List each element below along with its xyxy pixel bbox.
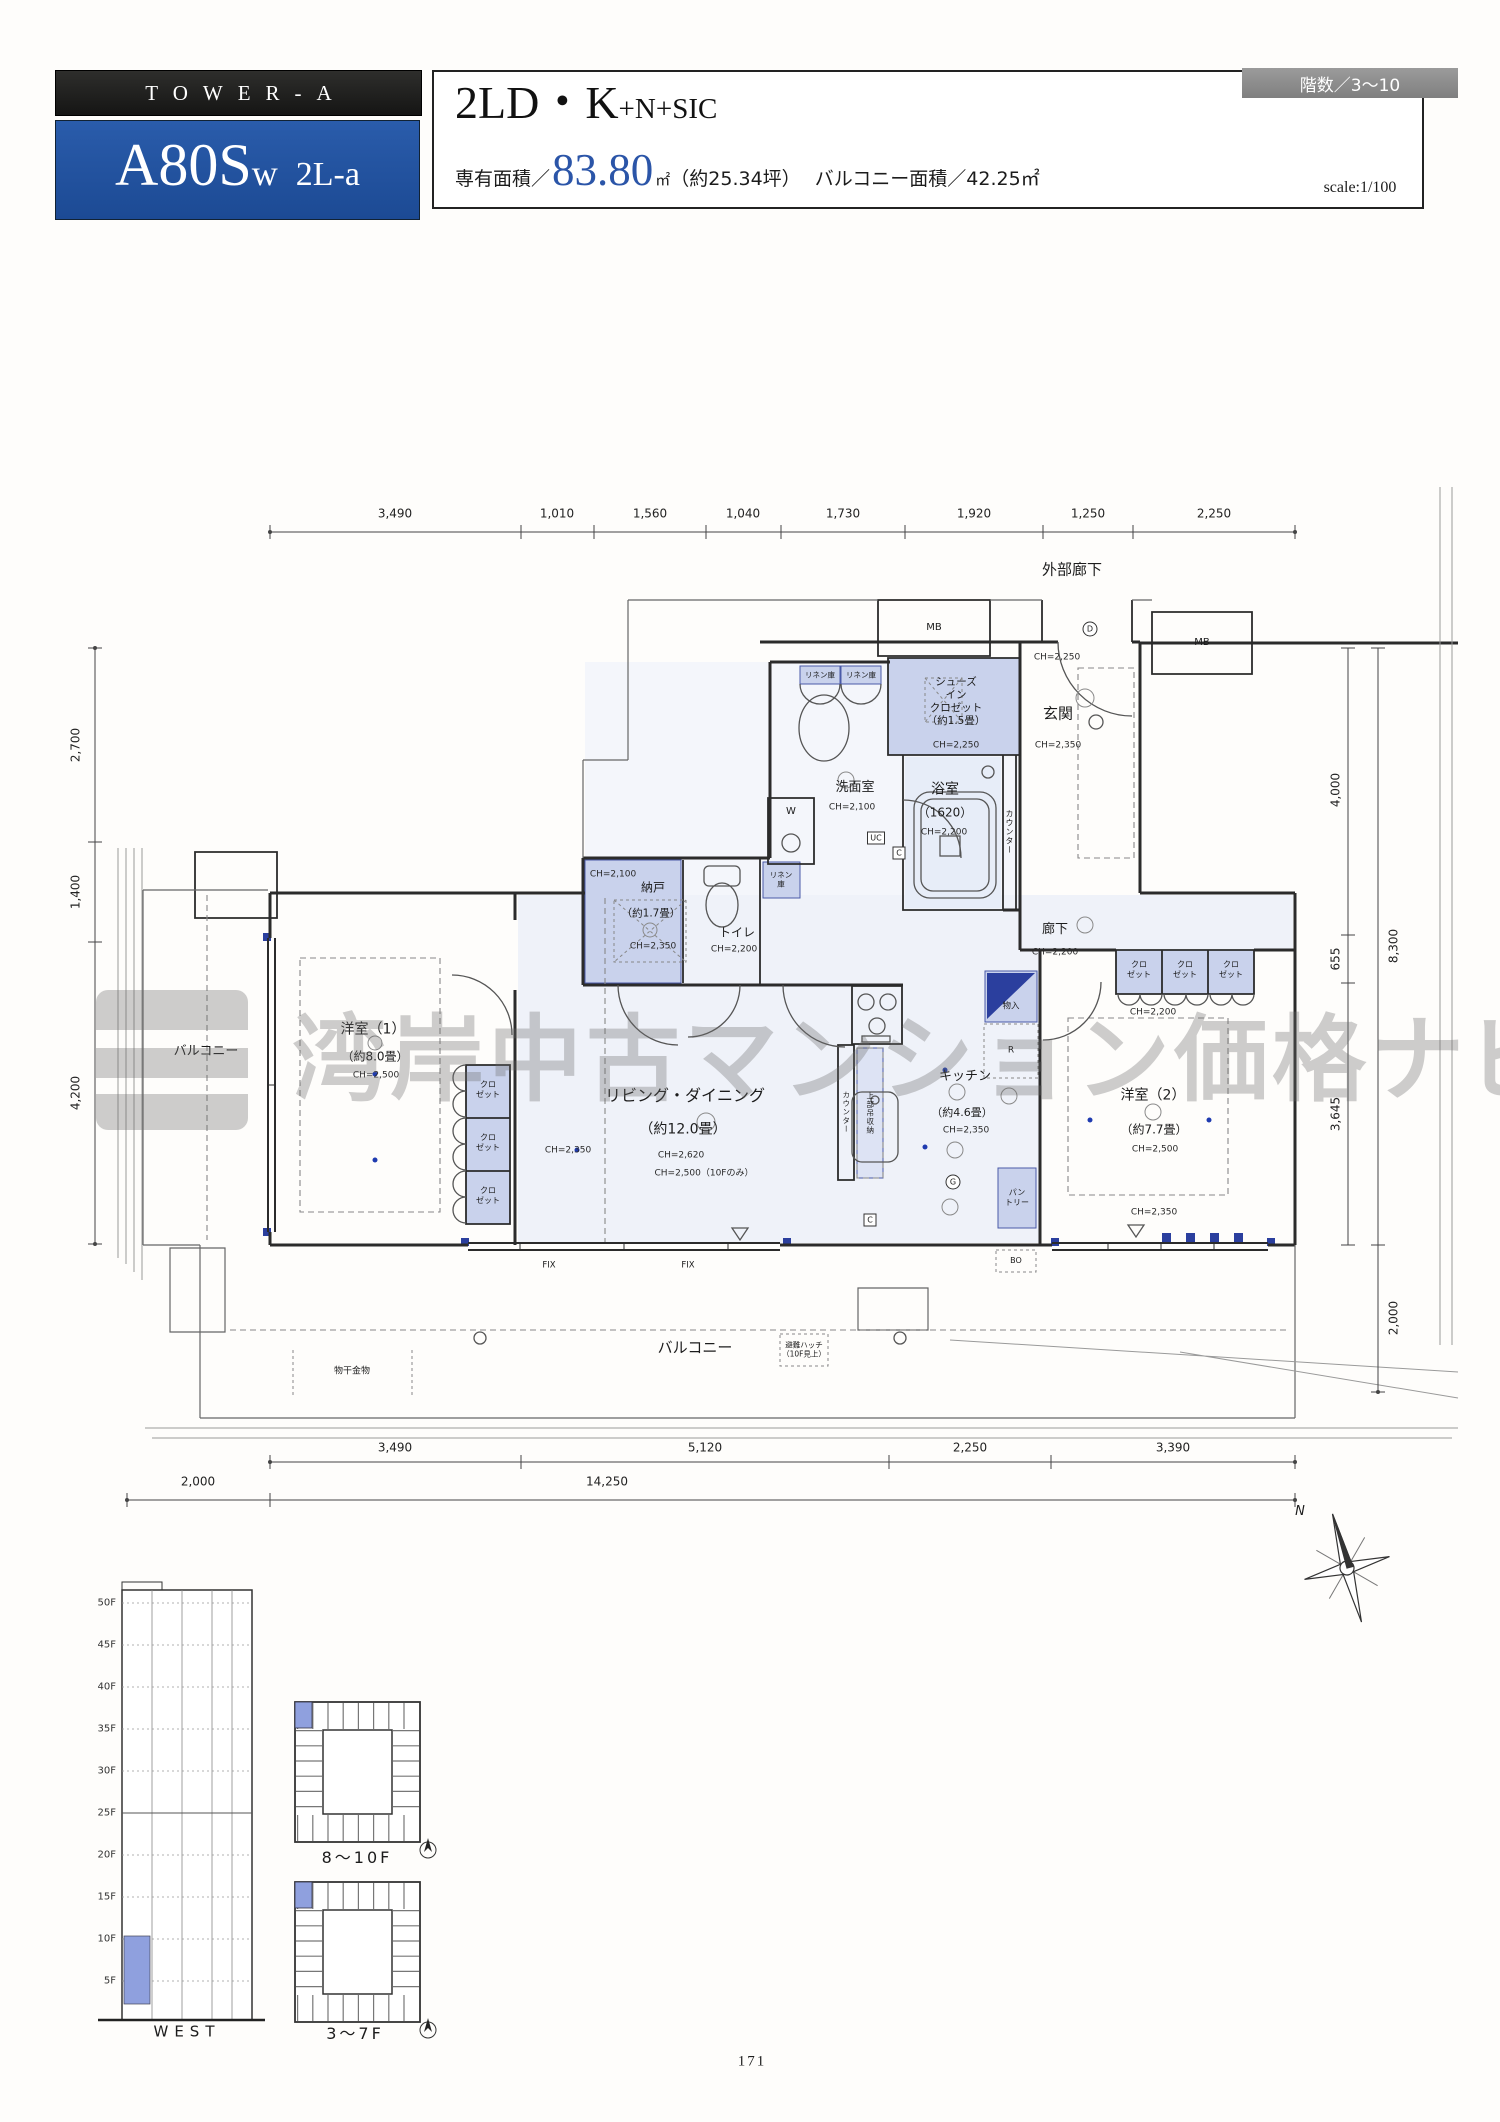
label-nando-size: （約1.7畳） (622, 907, 681, 920)
label-closet-l3: クロ ゼット (476, 1186, 500, 1206)
label-g: G (946, 1175, 961, 1190)
label-living-size: （約12.0畳） (639, 1121, 726, 1139)
label-bath-ch: CH=2,200 (921, 827, 967, 838)
label-ld-ch1: CH=2,350 (545, 1145, 591, 1156)
label-d: D (1083, 622, 1098, 637)
watermark-logo (96, 990, 248, 1130)
page-number: 171 (738, 2053, 767, 2072)
label-ld-ch3: CH=2,500（10Fのみ） (655, 1168, 754, 1179)
label-mb-left: MB (926, 622, 942, 635)
dim-top-7: 1,250 (1071, 507, 1105, 522)
dim-bottom-4: 3,390 (1156, 1441, 1190, 1456)
label-mb-right: MB (1194, 637, 1210, 650)
label-closet-r2: クロ ゼット (1173, 960, 1197, 980)
dim-top-5: 1,730 (826, 507, 860, 522)
keyplate-linework (285, 1690, 450, 2060)
label-bedroom2-ch1: CH=2,500 (1132, 1144, 1178, 1155)
dim-top-4: 1,040 (726, 507, 760, 522)
floor-label-50f: 50F (80, 1598, 116, 1609)
floor-label-15f: 15F (80, 1892, 116, 1903)
label-hall-ch: CH=2,200 (1032, 947, 1078, 958)
label-balcony-bottom: バルコニー (658, 1339, 733, 1358)
keyplate-upper-label: 8～10F (322, 1848, 393, 1868)
label-bedroom2-size: （約7.7畳） (1120, 1123, 1187, 1138)
label-hatch: 避難ハッチ （10F見上） (782, 1341, 826, 1360)
label-nando-ch1: CH=2,100 (590, 869, 636, 880)
label-linen-2: リネン庫 (846, 670, 876, 679)
dim-left-2: 1,400 (69, 875, 84, 909)
dim-left-3: 4,200 (69, 1076, 84, 1110)
label-ld-ch2: CH=2,620 (658, 1150, 704, 1161)
dim-top-6: 1,920 (957, 507, 991, 522)
floor-label-30f: 30F (80, 1766, 116, 1777)
dim-bottom-total: 14,250 (586, 1475, 628, 1490)
dim-right-1: 4,000 (1329, 773, 1344, 807)
dim-left-1: 2,700 (69, 728, 84, 762)
label-counter-bath: カウンター (1005, 810, 1013, 855)
dim-bottom-3: 2,250 (953, 1441, 987, 1456)
compass-rose (1292, 1498, 1402, 1623)
label-nando: 納戸 (641, 881, 665, 896)
label-c-kitchen: C (864, 1214, 877, 1227)
label-fix-1: FIX (542, 1261, 555, 1272)
label-kitchen-ch: CH=2,350 (943, 1125, 989, 1136)
label-shoes-in-closet: シューズ イン クロゼット （約1.5畳） (927, 676, 986, 729)
dim-top-8: 2,250 (1197, 507, 1231, 522)
dim-top-3: 1,560 (633, 507, 667, 522)
dim-bottom-2: 5,120 (688, 1441, 722, 1456)
label-bath: 浴室 (931, 781, 959, 799)
floor-label-25f: 25F (80, 1808, 116, 1819)
label-closet-r1: クロ ゼット (1127, 960, 1151, 980)
floor-label-10f: 10F (80, 1934, 116, 1945)
label-genkan-ch-upper: CH=2,250 (1034, 652, 1080, 663)
label-bath-size: （1620） (918, 806, 973, 821)
label-genkan-ch: CH=2,350 (1035, 740, 1081, 751)
label-closet-l2: クロ ゼット (476, 1133, 500, 1153)
label-uc: UC (867, 832, 885, 845)
dim-bottom-1: 3,490 (378, 1441, 412, 1456)
floor-label-20f: 20F (80, 1850, 116, 1861)
label-monohoshi: 物干金物 (334, 1366, 370, 1377)
dim-bottom-left: 2,000 (181, 1475, 215, 1490)
label-pantry: パン トリー (1005, 1188, 1029, 1208)
label-linen-3: リネン 庫 (770, 871, 793, 890)
label-bedroom2-ch2: CH=2,350 (1131, 1207, 1177, 1218)
label-fix-2: FIX (681, 1261, 694, 1272)
dim-right-total: 8,300 (1387, 929, 1402, 963)
label-nando-ch2: CH=2,350 (630, 941, 676, 952)
dim-top-1: 3,490 (378, 507, 412, 522)
label-bo: BO (1010, 1256, 1022, 1266)
label-genkan: 玄関 (1043, 705, 1073, 724)
floor-label-5f: 5F (80, 1976, 116, 1987)
label-c-bath: C (893, 847, 906, 860)
label-exterior-corridor: 外部廊下 (1042, 561, 1102, 580)
label-washroom-ch: CH=2,100 (829, 802, 875, 813)
keyplate-lower-label: 3～7F (326, 2024, 384, 2044)
label-toilet-ch: CH=2,200 (711, 944, 757, 955)
dim-right-2: 655 (1329, 948, 1344, 971)
label-closet-r3: クロ ゼット (1219, 960, 1243, 980)
label-sic-ch: CH=2,250 (933, 740, 979, 751)
floor-label-40f: 40F (80, 1682, 116, 1693)
floorplan-sheet: TOWER-A A80S w 2L-a 2LD・K +N+SIC 専有面積／ 8… (0, 0, 1500, 2122)
dim-right-balcony: 2,000 (1387, 1301, 1402, 1335)
floor-label-35f: 35F (80, 1724, 116, 1735)
elevation-west-label: WEST (154, 2023, 221, 2042)
label-washer: W (786, 806, 796, 819)
watermark-text: 湾岸中古マンション価格ナビ (292, 984, 1500, 1120)
label-toilet: トイレ (719, 926, 755, 941)
label-washroom: 洗面室 (835, 780, 874, 796)
dim-top-2: 1,010 (540, 507, 574, 522)
floor-label-45f: 45F (80, 1640, 116, 1651)
label-linen-1: リネン庫 (805, 670, 835, 679)
compass-n-label: N (1295, 1504, 1305, 1520)
label-hall: 廊下 (1042, 922, 1068, 938)
